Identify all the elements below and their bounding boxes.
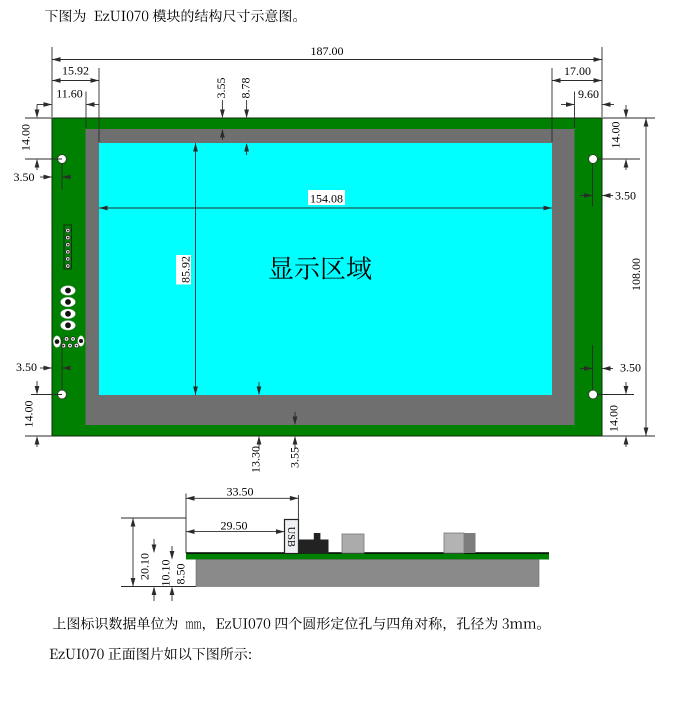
svg-text:14.00: 14.00 xyxy=(19,124,33,151)
svg-text:11.60: 11.60 xyxy=(56,87,83,101)
svg-text:USB: USB xyxy=(285,527,296,547)
svg-text:14.00: 14.00 xyxy=(22,401,36,428)
svg-text:10.10: 10.10 xyxy=(159,560,173,587)
svg-text:14.00: 14.00 xyxy=(607,405,621,432)
svg-text:17.00: 17.00 xyxy=(564,64,591,78)
svg-text:3.50: 3.50 xyxy=(615,189,636,203)
svg-text:8.50: 8.50 xyxy=(174,564,188,585)
svg-text:85.92: 85.92 xyxy=(179,256,193,283)
svg-text:3.55: 3.55 xyxy=(214,78,228,99)
svg-text:29.50: 29.50 xyxy=(221,519,248,533)
svg-text:187.00: 187.00 xyxy=(311,44,344,58)
svg-text:108.00: 108.00 xyxy=(629,258,643,291)
svg-text:13.30: 13.30 xyxy=(249,446,263,473)
svg-text:154.08: 154.08 xyxy=(310,192,343,206)
svg-text:15.92: 15.92 xyxy=(62,64,89,78)
svg-text:3.50: 3.50 xyxy=(14,170,35,184)
svg-text:8.78: 8.78 xyxy=(239,78,253,99)
svg-text:3.55: 3.55 xyxy=(288,447,302,468)
svg-text:9.60: 9.60 xyxy=(578,87,599,101)
svg-text:3.50: 3.50 xyxy=(620,361,641,375)
svg-text:3.50: 3.50 xyxy=(16,360,37,374)
svg-text:14.00: 14.00 xyxy=(609,122,623,149)
svg-text:20.10: 20.10 xyxy=(138,553,152,580)
svg-text:33.50: 33.50 xyxy=(227,485,254,499)
